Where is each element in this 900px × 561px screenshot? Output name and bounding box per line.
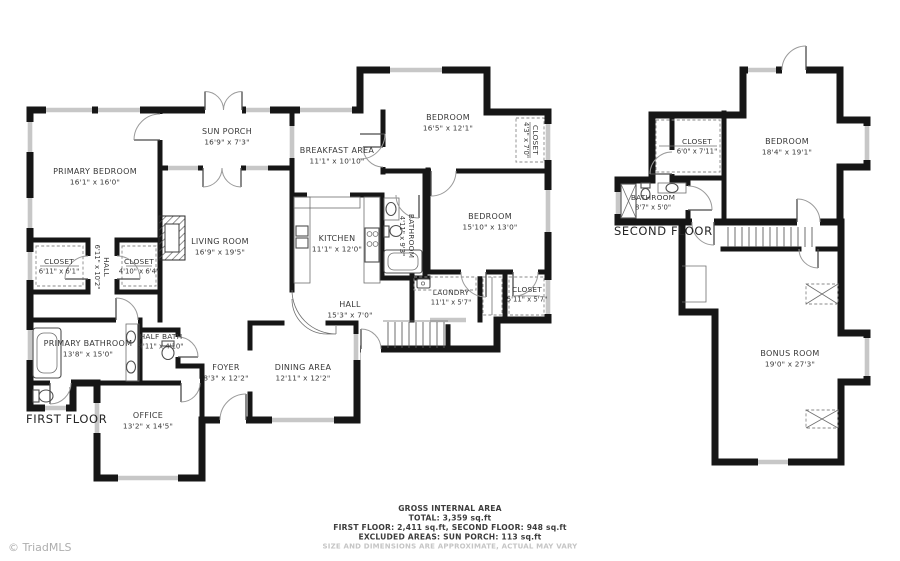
room-label-closet-left: CLOSET [44, 257, 74, 266]
room-label-sun-porch: SUN PORCH [202, 127, 252, 136]
room-label-office: OFFICE [133, 411, 163, 420]
room-dims-kitchen: 11'1" x 12'0" [312, 245, 362, 254]
room-dims-breakfast-area: 11'1" x 10'10" [310, 157, 365, 166]
room-dims-bedroom-right: 15'10" x 13'0" [463, 223, 518, 232]
stairs-first-floor [383, 321, 448, 348]
floor-plan-page: PRIMARY BEDROOM 16'1" x 16'0" SUN PORCH … [0, 0, 900, 561]
room-label-foyer: FOYER [212, 363, 240, 372]
room-dims-sf-bathroom: 8'7" x 5'0" [635, 204, 671, 212]
room-dims-closet-top: 4'3" x 7'0" [522, 122, 530, 158]
room-dims-primary-bathroom: 13'8" x 15'0" [63, 350, 113, 359]
room-label-sf-bathroom: BATHROOM [631, 193, 675, 202]
room-label-bonus-room: BONUS ROOM [760, 349, 819, 358]
room-label-sf-closet: CLOSET [682, 137, 712, 146]
room-label-laundry: LAUNDRY [433, 288, 470, 297]
summary-floors: FIRST FLOOR: 2,411 sq.ft, SECOND FLOOR: … [333, 523, 567, 532]
room-dims-laundry: 11'1" x 5'7" [431, 299, 472, 307]
room-dims-sf-bedroom: 18'4" x 19'1" [762, 148, 812, 157]
room-label-primary-bathroom: PRIMARY BATHROOM [44, 339, 133, 348]
room-label-sf-bedroom: BEDROOM [765, 137, 809, 146]
summary-title: GROSS INTERNAL AREA [398, 504, 501, 513]
room-label-bedroom-right: BEDROOM [468, 212, 512, 221]
primary-bathroom-fixtures [33, 324, 139, 402]
summary-disclaimer: SIZE AND DIMENSIONS ARE APPROXIMATE, ACT… [323, 543, 579, 551]
room-label-breakfast-area: BREAKFAST AREA [300, 146, 375, 155]
watermark: © TriadMLS [8, 541, 72, 554]
room-label-hall-main: HALL [339, 300, 361, 309]
floor-plan-svg: PRIMARY BEDROOM 16'1" x 16'0" SUN PORCH … [0, 0, 900, 561]
room-dims-office: 13'2" x 14'5" [123, 422, 173, 431]
room-dims-closet-left: 6'11" x 6'1" [39, 268, 80, 276]
room-label-closet-laundry: CLOSET [512, 285, 542, 294]
first-floor: PRIMARY BEDROOM 16'1" x 16'0" SUN PORCH … [26, 70, 548, 478]
room-dims-sun-porch: 16'9" x 7'3" [204, 138, 249, 147]
room-label-bathroom: BATHROOM [407, 214, 416, 258]
fireplace [159, 216, 185, 260]
summary-block: GROSS INTERNAL AREA TOTAL: 3,359 sq.ft F… [323, 504, 579, 551]
room-dims-foyer: 8'3" x 12'2" [203, 374, 248, 383]
room-dims-bathroom: 4'11" x 9'3" [398, 216, 406, 257]
room-dims-bedroom-top: 16'5" x 12'1" [423, 124, 473, 133]
room-label-hall-closets: HALL [102, 257, 111, 277]
room-label-dining-area: DINING AREA [275, 363, 332, 372]
second-floor: CLOSET 6'0" x 7'11" BEDROOM 18'4" x 19'1… [614, 46, 867, 462]
room-label-primary-bedroom: PRIMARY BEDROOM [53, 167, 137, 176]
room-dims-sf-closet: 6'0" x 7'11" [677, 148, 718, 156]
room-dims-living-room: 16'9" x 19'5" [195, 248, 245, 257]
first-floor-title: FIRST FLOOR [26, 412, 107, 426]
room-dims-hall-main: 15'3" x 7'0" [327, 311, 372, 320]
room-label-half-bath: HALF BATH [140, 332, 183, 341]
room-dims-closet-laundry: 5'11" x 5'7" [507, 296, 548, 304]
room-label-kitchen: KITCHEN [319, 234, 356, 243]
room-dims-dining-area: 12'11" x 12'2" [276, 374, 331, 383]
room-dims-hall-closets: 6'11" x 10'2" [93, 245, 101, 290]
room-label-living-room: LIVING ROOM [191, 237, 249, 246]
room-dims-primary-bedroom: 16'1" x 16'0" [70, 178, 120, 187]
summary-total: TOTAL: 3,359 sq.ft [409, 514, 492, 523]
second-floor-exterior-walls-lower [682, 222, 867, 462]
room-label-closet-mid: CLOSET [124, 257, 154, 266]
room-dims-bonus-room: 19'0" x 27'3" [765, 360, 815, 369]
room-label-bedroom-top: BEDROOM [426, 113, 470, 122]
room-dims-half-bath: 4'11" x 4'10" [139, 343, 184, 351]
second-floor-title: SECOND FLOOR [614, 224, 713, 238]
stairs-second-floor [728, 227, 812, 247]
summary-excluded: EXCLUDED AREAS: SUN PORCH: 113 sq.ft [358, 533, 541, 542]
room-dims-closet-mid: 4'10" x 6'4" [119, 268, 160, 276]
room-label-closet-top: CLOSET [531, 125, 540, 155]
